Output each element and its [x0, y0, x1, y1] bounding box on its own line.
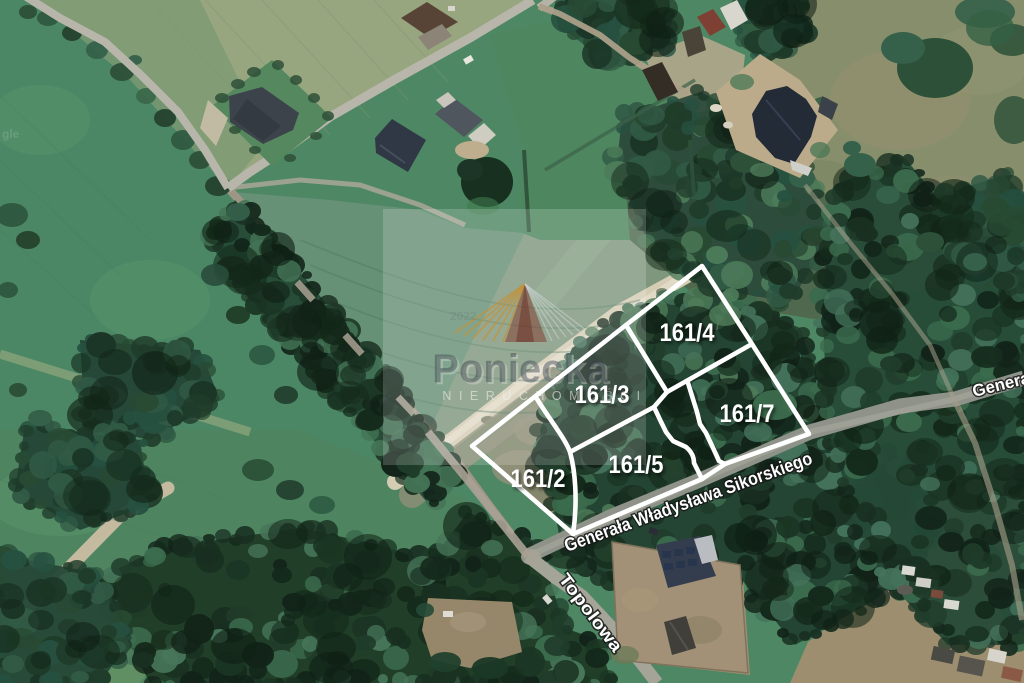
- svg-text:161/4: 161/4: [660, 319, 715, 347]
- svg-text:161/7: 161/7: [720, 400, 775, 428]
- svg-text:2022: 2022: [450, 309, 477, 323]
- svg-text:161/3: 161/3: [575, 381, 630, 409]
- svg-text:161/5: 161/5: [609, 451, 664, 479]
- svg-text:161/2: 161/2: [511, 465, 566, 493]
- svg-text:gle: gle: [2, 127, 20, 141]
